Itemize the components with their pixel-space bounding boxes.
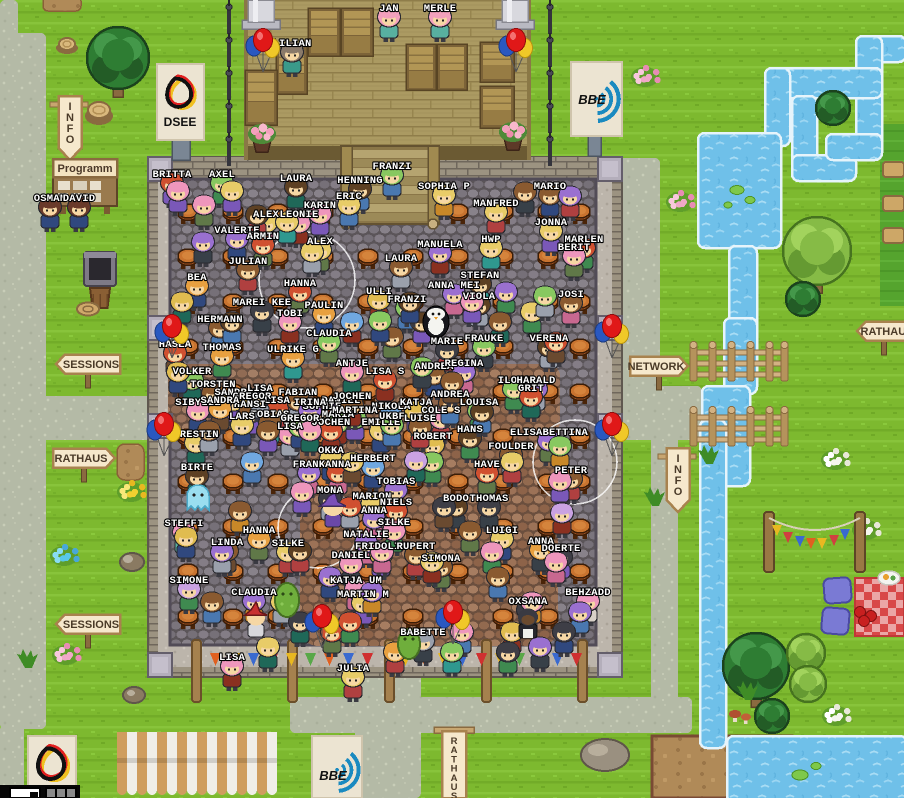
svg-text:ALEX: ALEX [253,209,280,221]
svg-text:KATJA UM: KATJA UM [330,575,382,587]
svg-text:FRANZI: FRANZI [387,294,426,306]
svg-text:JOSI: JOSI [558,289,584,301]
svg-text:THOMAS: THOMAS [469,493,508,505]
svg-text:CLAUDIA: CLAUDIA [306,328,352,340]
svg-text:LISA: LISA [219,652,246,664]
svg-text:SILKE: SILKE [378,517,411,529]
svg-text:THOMAS: THOMAS [202,342,241,354]
svg-text:MANFRED: MANFRED [473,198,519,210]
svg-text:MARTINA: MARTINA [332,405,378,417]
svg-text:ANTJE: ANTJE [336,358,369,370]
svg-text:SESSIONS: SESSIONS [63,619,119,631]
svg-text:Programm: Programm [57,163,112,175]
svg-text:PAULIN: PAULIN [304,300,343,312]
svg-text:STEFFI: STEFFI [164,518,203,530]
svg-text:DAVID: DAVID [63,193,96,205]
svg-text:ELISABETTINA: ELISABETTINA [510,427,589,439]
svg-text:SOPHIA P: SOPHIA P [418,181,470,193]
svg-text:BEA: BEA [187,272,207,284]
svg-text:REGINA: REGINA [444,358,484,370]
svg-text:BRITTA: BRITTA [152,169,192,181]
svg-text:VIOLA: VIOLA [463,291,496,303]
svg-text:S: S [451,791,457,798]
svg-text:AXEL: AXEL [209,169,235,181]
svg-text:HANNA: HANNA [284,278,317,290]
svg-text:MARIO: MARIO [534,181,567,193]
svg-text:LISA S: LISA S [365,366,404,378]
svg-text:RATHAUS: RATHAUS [861,326,904,338]
svg-text:VOLKER: VOLKER [172,366,212,378]
svg-text:ERIC: ERIC [336,191,363,203]
svg-text:HENNING: HENNING [337,175,383,187]
svg-text:MANUELA: MANUELA [417,239,463,251]
svg-text:HWP: HWP [481,234,501,246]
svg-text:FRAUKE: FRAUKE [464,333,503,345]
svg-text:JOCHEN: JOCHEN [332,391,371,403]
svg-text:SIMONA: SIMONA [421,553,461,565]
svg-text:DSEE: DSEE [164,115,197,129]
svg-text:SIMONE: SIMONE [169,575,208,587]
svg-text:SILKE: SILKE [272,538,305,550]
svg-text:JULIAN: JULIAN [228,256,267,268]
svg-text:MARIE: MARIE [431,336,464,348]
svg-text:ALEX: ALEX [307,236,334,248]
svg-text:GREGOR: GREGOR [280,413,320,425]
svg-text:ANNA: ANNA [361,505,388,517]
svg-text:JULIA: JULIA [337,663,370,675]
svg-text:ARMIN: ARMIN [247,231,280,243]
svg-text:MARTIN M: MARTIN M [337,589,389,601]
svg-text:MONA: MONA [317,485,344,497]
svg-text:LAURA: LAURA [280,173,313,185]
svg-text:JONNA: JONNA [535,217,568,229]
svg-text:LAURA: LAURA [385,253,418,265]
svg-text:DANIEL: DANIEL [331,550,370,562]
svg-text:RUPERT: RUPERT [396,541,435,553]
svg-text:ULRIKE G: ULRIKE G [267,344,319,356]
svg-text:BEHZADD: BEHZADD [565,587,611,599]
svg-text:BODO: BODO [443,493,469,505]
svg-text:SESSIONS: SESSIONS [63,359,119,371]
svg-text:FOULDER: FOULDER [488,441,534,453]
svg-text:LISA: LISA [264,395,291,407]
svg-text:LARS: LARS [229,411,255,423]
svg-text:LEONIE: LEONIE [279,209,318,221]
svg-text:TOBIAS: TOBIAS [376,476,415,488]
svg-text:ANNA: ANNA [325,459,352,471]
svg-text:LINDA: LINDA [211,537,244,549]
svg-text:ANDREA: ANDREA [430,389,470,401]
svg-text:PETER: PETER [555,465,588,477]
svg-text:ROBERT: ROBERT [413,431,452,443]
svg-text:GRIT: GRIT [518,383,544,395]
svg-text:OKKA: OKKA [318,445,345,457]
svg-text:NATALIE: NATALIE [343,529,389,541]
svg-text:IRINA: IRINA [294,397,327,409]
svg-text:BIRTE: BIRTE [181,462,214,474]
svg-text:UKBF: UKBF [379,411,405,423]
svg-text:OSMAN: OSMAN [34,193,67,205]
svg-text:HANNA: HANNA [243,525,276,537]
svg-text:BERIT: BERIT [558,242,591,254]
svg-text:HERMANN: HERMANN [197,314,243,326]
svg-text:LUIGI: LUIGI [486,525,519,537]
svg-text:O: O [674,486,683,498]
svg-text:KATJA: KATJA [400,397,433,409]
svg-text:SANDRA: SANDRA [200,395,240,407]
svg-text:DOERTE: DOERTE [541,543,580,555]
svg-text:JAN: JAN [379,3,399,15]
svg-text:FRANZI: FRANZI [372,161,411,173]
svg-text:TOBI: TOBI [277,308,303,320]
svg-text:RATHAUS: RATHAUS [55,453,108,465]
svg-text:HAVE: HAVE [474,459,500,471]
svg-text:FRANK: FRANK [293,459,326,471]
svg-text:MERLE: MERLE [424,3,457,15]
svg-text:VERENA: VERENA [529,333,569,345]
svg-text:CLAUDIA: CLAUDIA [231,587,277,599]
svg-text:BBE: BBE [578,92,606,107]
svg-text:NETWORK: NETWORK [628,361,685,373]
svg-text:LISA: LISA [247,383,274,395]
svg-text:BBE: BBE [319,768,347,783]
svg-text:OXSANA: OXSANA [508,596,548,608]
svg-text:HANS: HANS [457,424,483,436]
svg-text:HERBERT: HERBERT [350,453,396,465]
svg-text:LUISE: LUISE [404,413,437,425]
svg-text:BABETTE: BABETTE [400,627,446,639]
svg-text:O: O [66,134,75,146]
